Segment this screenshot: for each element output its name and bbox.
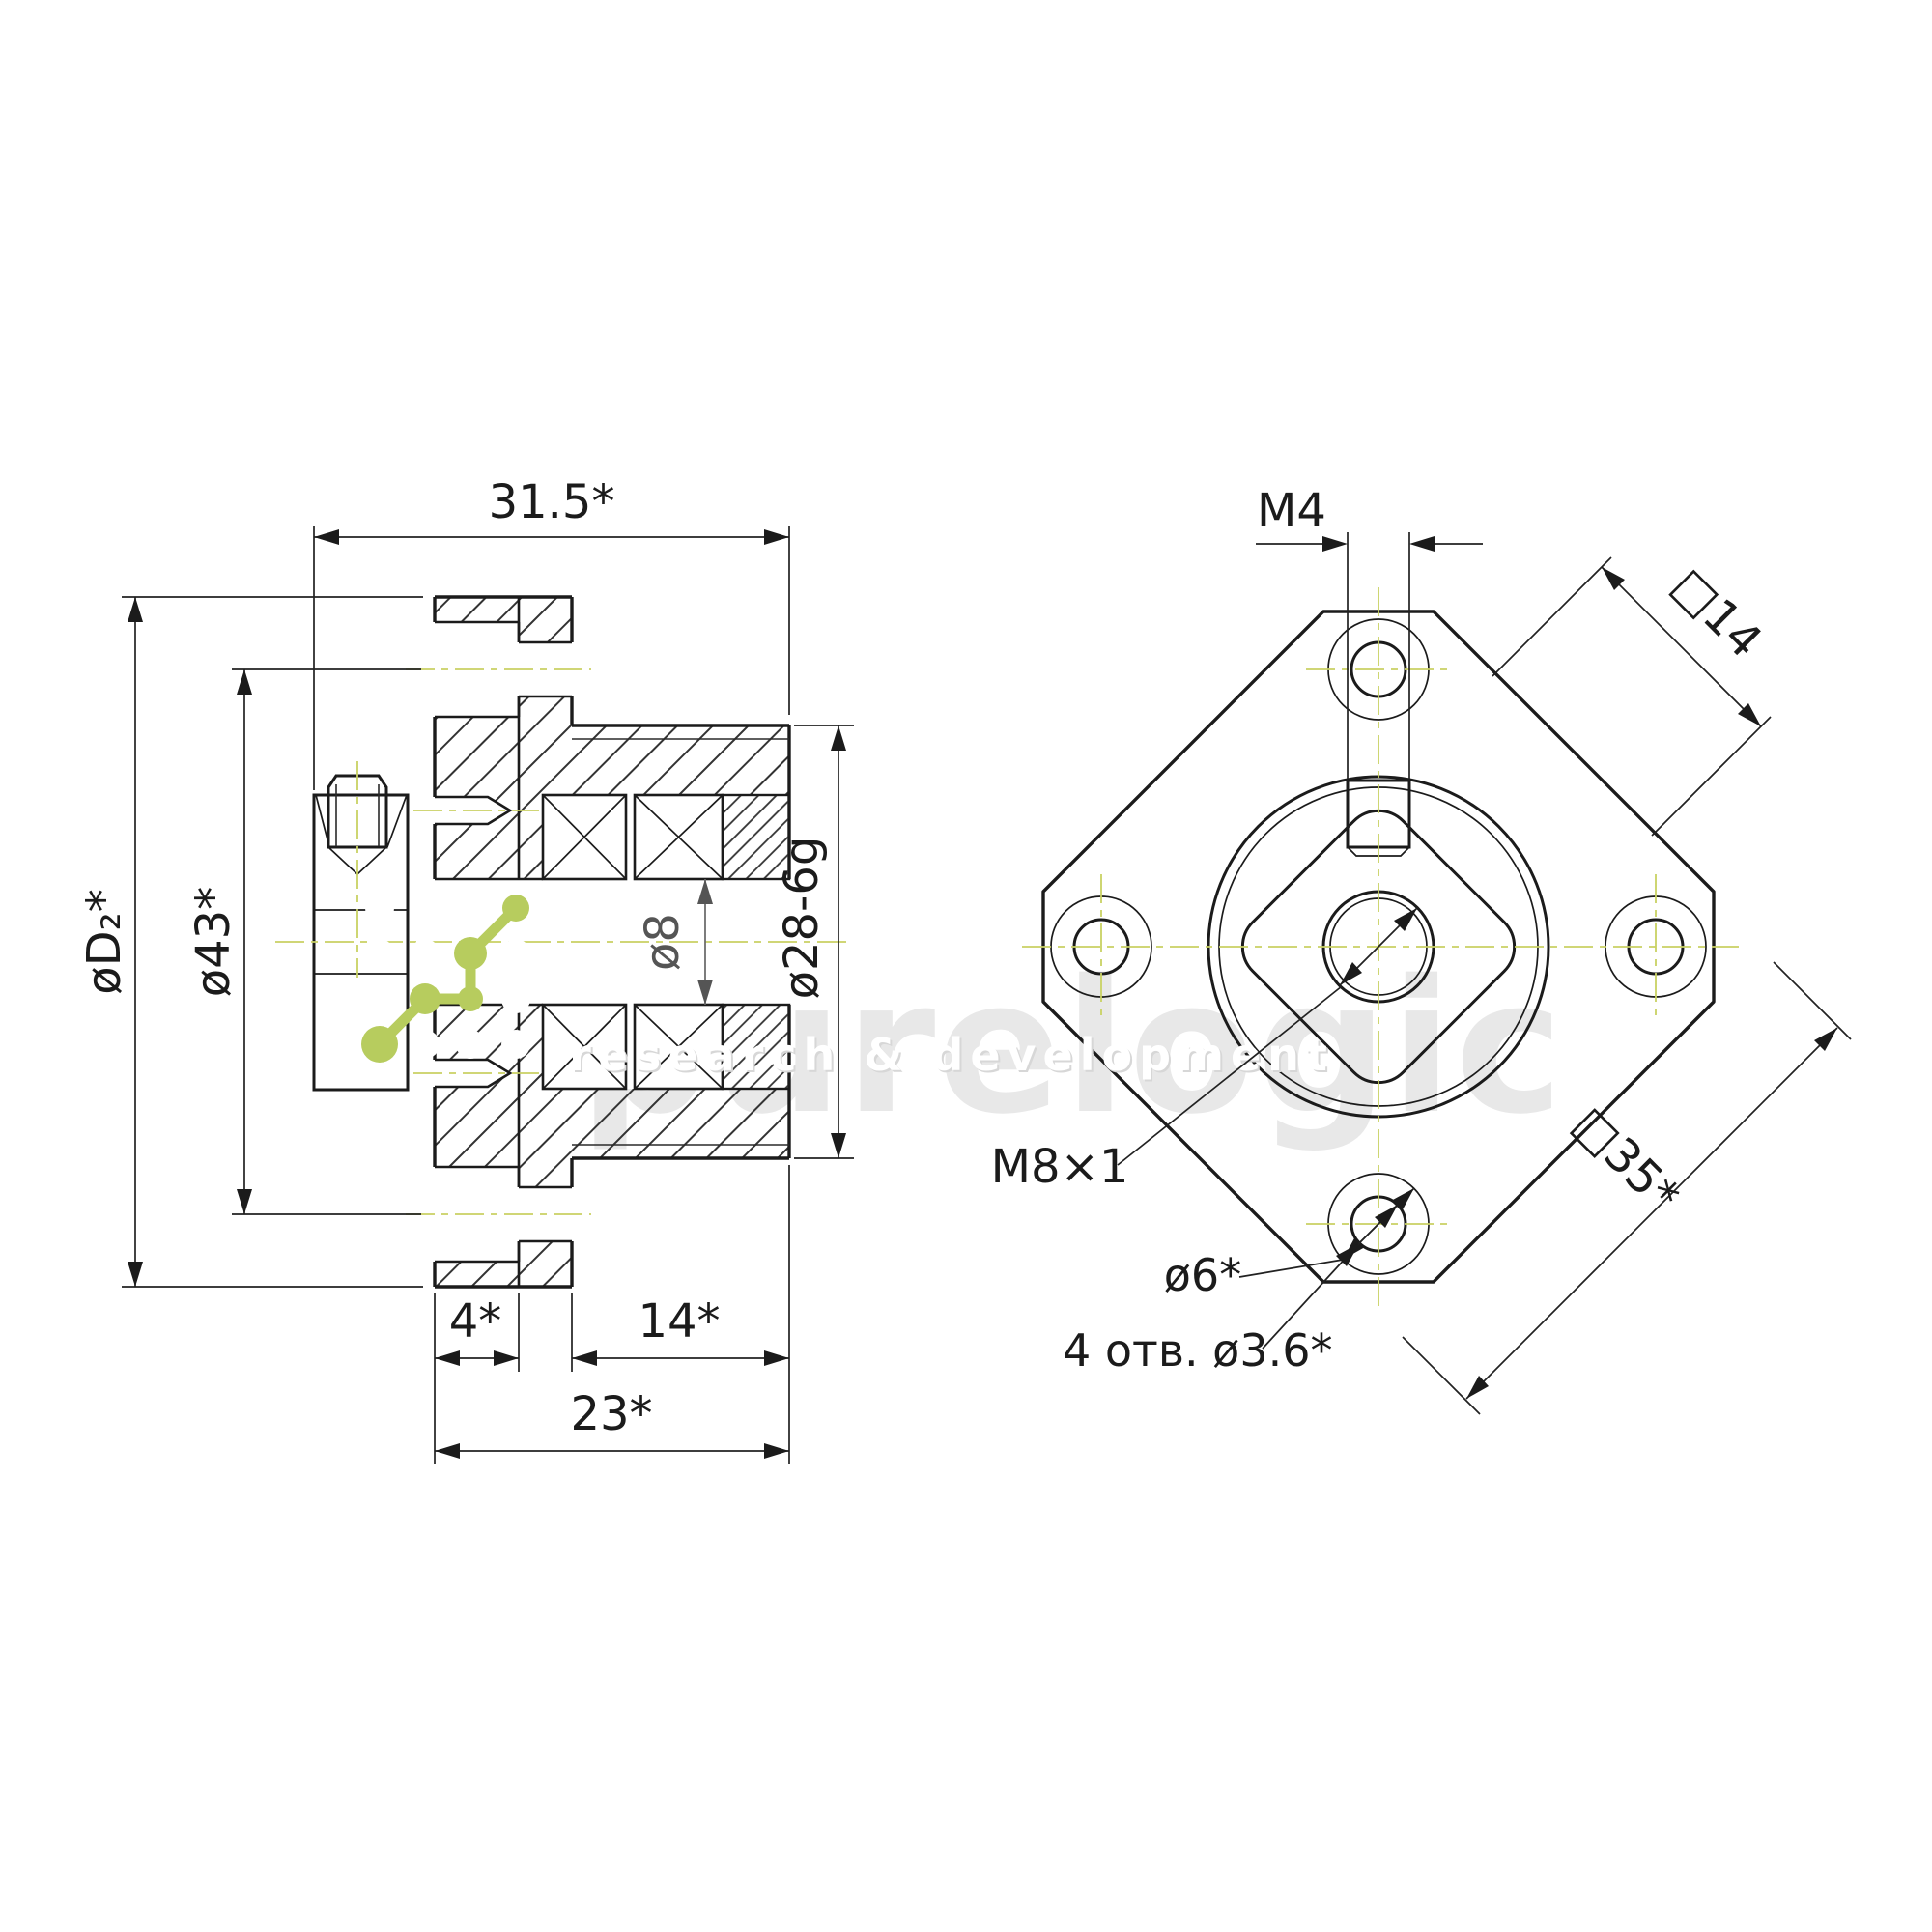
dim-label-pilot-length: 14* (638, 1294, 720, 1349)
dim-label-mounting-holes: 4 отв. ø3.6* (1063, 1324, 1332, 1377)
dim-label-flange-diameter: øD₂* (77, 889, 131, 995)
dim-label-counterbore: ø6* (1164, 1249, 1241, 1301)
dim-label-corner-flat: □14 (1662, 557, 1773, 668)
dim-label-set-screw: M4 (1257, 484, 1326, 538)
dim-label-pilot-diameter: ø28-6g (775, 837, 829, 1000)
left-view-section (275, 597, 852, 1287)
dim-label-flange-square: □35* (1562, 1096, 1690, 1224)
drawing-canvas: purelogic (0, 0, 1932, 1932)
dim-label-flange-thickness: 4* (449, 1294, 502, 1349)
dim-corner-flat: □14 (1492, 557, 1773, 836)
dim-label-bore: ø8 (636, 913, 690, 971)
dim-counterbore: ø6* (1164, 1188, 1414, 1301)
dim-label-bolt-circle: ø43* (186, 887, 241, 997)
dim-label-center-thread: M8×1 (991, 1140, 1129, 1194)
watermark-tagline: research & development (569, 1029, 1334, 1081)
dim-label-overall-width: 31.5* (489, 475, 615, 529)
technical-drawing: purelogic (0, 0, 1932, 1932)
dim-label-body-length: 23* (570, 1387, 652, 1441)
dim-set-screw: M4 (1256, 484, 1483, 779)
